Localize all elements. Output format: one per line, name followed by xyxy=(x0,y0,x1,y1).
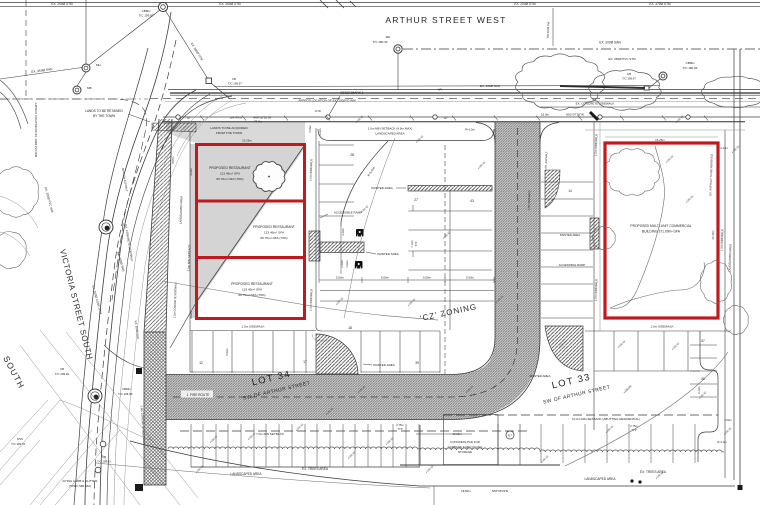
svg-text:10.0m MIN SETBACK (ABUTTING RE: 10.0m MIN SETBACK (ABUTTING RESIDENTIAL) xyxy=(572,417,640,421)
svg-text:17: 17 xyxy=(303,360,307,364)
svg-text:1.5m SIDEWALK: 1.5m SIDEWALK xyxy=(651,325,674,329)
svg-text:PROPOSED RESTAURANT: PROPOSED RESTAURANT xyxy=(253,225,295,229)
svg-text:1.70m: 1.70m xyxy=(410,239,414,247)
svg-text:T/C 199.92: T/C 199.92 xyxy=(55,372,70,376)
svg-text:WV: WV xyxy=(438,88,443,92)
svg-text:15.25m: 15.25m xyxy=(242,139,252,143)
svg-text:15.0m: 15.0m xyxy=(541,113,550,117)
svg-text:LANDS TO BE RETAINED: LANDS TO BE RETAINED xyxy=(85,109,123,113)
svg-text:EX. CONCRETE SIDEWALK: EX. CONCRETE SIDEWALK xyxy=(576,102,615,106)
svg-text:1.5m SIDEWALK: 1.5m SIDEWALK xyxy=(594,279,599,301)
svg-text:5.50m: 5.50m xyxy=(466,276,475,280)
svg-text:1.50m: 1.50m xyxy=(345,259,349,267)
svg-text:APPROX LOCATION OF EX. 200Ø PV: APPROX LOCATION OF EX. 200Ø PVC WM xyxy=(34,103,38,158)
svg-text:LANDS TO BE ACQUIRED: LANDS TO BE ACQUIRED xyxy=(210,126,248,130)
svg-text:PROPOSED RESTAURANT: PROPOSED RESTAURANT xyxy=(209,166,251,170)
svg-text:R=1.0m: R=1.0m xyxy=(717,440,726,444)
svg-text:2.55m: 2.55m xyxy=(308,124,312,132)
svg-text:HL50m: HL50m xyxy=(461,489,471,493)
svg-text:12: 12 xyxy=(199,361,203,365)
svg-text:86.76m² NFA (70%): 86.76m² NFA (70%) xyxy=(216,177,243,181)
svg-text:1.5m SIDEWALK: 1.5m SIDEWALK xyxy=(594,134,599,156)
svg-text:6.00m: 6.00m xyxy=(381,276,390,280)
svg-text:BUILDING 371.09m² GFA: BUILDING 371.09m² GFA xyxy=(642,230,681,234)
svg-text:T/C 199.81: T/C 199.81 xyxy=(97,460,111,464)
svg-text:1 FIRE ROUTE: 1 FIRE ROUTE xyxy=(187,393,210,397)
svg-text:86.76m² NFA (70%): 86.76m² NFA (70%) xyxy=(238,293,265,297)
svg-text:(24.47m): (24.47m) xyxy=(230,116,242,120)
svg-text:TYP: TYP xyxy=(414,241,418,247)
svg-text:3.42m: 3.42m xyxy=(341,227,345,235)
svg-text:14: 14 xyxy=(568,189,572,193)
svg-text:2.75m: 2.75m xyxy=(396,423,404,427)
svg-text:43: 43 xyxy=(470,199,474,203)
svg-text:MH: MH xyxy=(96,63,101,67)
svg-text:1.5m SIDEWALK: 1.5m SIDEWALK xyxy=(242,325,265,329)
svg-text:LP: LP xyxy=(187,116,191,120)
svg-text:39: 39 xyxy=(415,361,419,365)
svg-text:CB: CB xyxy=(627,72,631,76)
svg-text:7.0m MIN SETBACK: 7.0m MIN SETBACK xyxy=(256,432,284,436)
svg-text:5.50m: 5.50m xyxy=(225,347,229,355)
svg-text:LANDSCAPED AREA: LANDSCAPED AREA xyxy=(375,132,404,136)
svg-text:CBMH: CBMH xyxy=(142,9,151,13)
svg-text:RD 300Ø SW: RD 300Ø SW xyxy=(546,21,551,38)
svg-text:123.45m² GFA: 123.45m² GFA xyxy=(264,231,285,235)
svg-text:EX. 200Ø STM: EX. 200Ø STM xyxy=(51,2,73,6)
svg-text:PAINTED AREA: PAINTED AREA xyxy=(560,233,580,237)
svg-text:57: 57 xyxy=(701,339,705,343)
svg-text:R=1.5m: R=1.5m xyxy=(465,128,476,132)
svg-text:1.5m SIDEWALK: 1.5m SIDEWALK xyxy=(527,189,532,210)
svg-text:PAINTED AREA: PAINTED AREA xyxy=(373,363,395,367)
svg-text:1.40m: 1.40m xyxy=(340,259,344,267)
svg-text:LANDSCAPED AREA: LANDSCAPED AREA xyxy=(585,477,617,481)
svg-text:PAINTED AREA: PAINTED AREA xyxy=(377,252,399,256)
svg-text:EX. 200Ø SAN: EX. 200Ø SAN xyxy=(480,84,500,88)
svg-text:PROPOSED RESTAURANT: PROPOSED RESTAURANT xyxy=(231,282,273,286)
svg-text:CB: CB xyxy=(232,77,236,81)
svg-text:18: 18 xyxy=(348,326,352,330)
svg-text:77.7m: 77.7m xyxy=(254,120,263,124)
svg-text:TYP: TYP xyxy=(397,427,402,431)
svg-text:28: 28 xyxy=(350,153,354,157)
svg-text:MH: MH xyxy=(386,35,391,39)
svg-text:GARBAGE & RECYCLING: GARBAGE & RECYCLING xyxy=(448,445,483,449)
svg-text:6.40m: 6.40m xyxy=(697,385,701,393)
svg-text:N52°05’02”E: N52°05’02”E xyxy=(492,489,508,493)
svg-text:EX. TREES AREA: EX. TREES AREA xyxy=(302,467,329,471)
svg-text:CBMH: CBMH xyxy=(686,61,695,65)
svg-text:1.0m MIN SETBACK (4.0m MAX): 1.0m MIN SETBACK (4.0m MAX) xyxy=(368,127,413,131)
svg-text:EX. ASPHALT: EX. ASPHALT xyxy=(544,151,549,168)
svg-text:3.14m: 3.14m xyxy=(720,146,728,150)
svg-text:123.45m² GFA: 123.45m² GFA xyxy=(220,172,241,176)
svg-text:ACCESSIBLE RAMP: ACCESSIBLE RAMP xyxy=(334,211,362,215)
svg-text:HYD: HYD xyxy=(315,109,321,113)
svg-text:3.00m: 3.00m xyxy=(318,127,322,135)
svg-text:24.39m: 24.39m xyxy=(711,230,715,240)
svg-text:EX. 250Ø PVC STM: EX. 250Ø PVC STM xyxy=(608,57,636,61)
svg-text:10.29m: 10.29m xyxy=(452,432,462,436)
svg-text:CB: CB xyxy=(60,367,64,371)
svg-text:STORAGE: STORAGE xyxy=(458,450,472,454)
svg-text:EX. 375Ø STM: EX. 375Ø STM xyxy=(649,2,671,6)
svg-text:E7: E7 xyxy=(508,434,512,438)
svg-text:3.00m: 3.00m xyxy=(189,167,193,175)
svg-text:MB: MB xyxy=(87,86,92,90)
svg-text:EX. 200Ø SAN: EX. 200Ø SAN xyxy=(599,41,621,45)
svg-text:PAINTED AREA: PAINTED AREA xyxy=(530,374,551,378)
svg-text:PAINTED AREA: PAINTED AREA xyxy=(371,186,393,190)
svg-text:1.5m SIDEWALK: 1.5m SIDEWALK xyxy=(309,289,314,311)
svg-text:27: 27 xyxy=(414,198,418,202)
svg-text:T/C 199.97: T/C 199.97 xyxy=(622,77,636,81)
svg-text:15.25m: 15.25m xyxy=(655,138,665,142)
svg-text:123.45m² GFA: 123.45m² GFA xyxy=(242,288,263,292)
svg-text:BENCHMARK 1: BENCHMARK 1 xyxy=(340,91,363,95)
svg-text:1.5m SIDEWALK: 1.5m SIDEWALK xyxy=(720,229,725,251)
svg-text:DYING CURB & GUTTER: DYING CURB & GUTTER xyxy=(63,479,99,483)
svg-text:5.00m: 5.00m xyxy=(423,276,432,280)
svg-text:T/C 180.02: T/C 180.02 xyxy=(683,66,698,70)
svg-text:CONCRETE PAD FOR: CONCRETE PAD FOR xyxy=(450,440,480,444)
svg-text:1.5m SIDEWALK: 1.5m SIDEWALK xyxy=(309,159,314,181)
svg-text:BY THE TOWN: BY THE TOWN xyxy=(93,114,116,118)
svg-text:APPROX LOCATION OF EX. 150Ø ID: APPROX LOCATION OF EX. 150Ø ID WM xyxy=(298,98,356,102)
svg-text:3.00m: 3.00m xyxy=(724,418,732,422)
svg-text:EX. 200Ø STM: EX. 200Ø STM xyxy=(514,2,536,6)
svg-text:T/C 199.99: T/C 199.99 xyxy=(118,392,133,396)
svg-text:PROPOSED MULTI-UNIT COMMERCIAL: PROPOSED MULTI-UNIT COMMERCIAL xyxy=(630,224,691,228)
svg-text:N52°07’30”W: N52°07’30”W xyxy=(566,113,584,117)
svg-text:T/C 199.67: T/C 199.67 xyxy=(228,82,242,86)
svg-text:EXTG: EXTG xyxy=(171,156,175,163)
svg-text:5.50m: 5.50m xyxy=(336,276,345,280)
svg-text:3.00m: 3.00m xyxy=(189,310,193,318)
svg-text:EX. 300Ø STM: EX. 300Ø STM xyxy=(219,2,241,6)
svg-text:DSS: DSS xyxy=(17,437,23,441)
svg-text:CBMH: CBMH xyxy=(122,387,131,391)
svg-text:LP: LP xyxy=(444,116,448,120)
svg-text:ARTHUR STREET WEST: ARTHUR STREET WEST xyxy=(385,15,506,25)
svg-text:ACCESSIBLE RAMP: ACCESSIBLE RAMP xyxy=(559,263,586,267)
svg-text:86.76m² NFA (70%): 86.76m² NFA (70%) xyxy=(260,236,287,240)
svg-text:FROM THE TOWN: FROM THE TOWN xyxy=(216,131,242,135)
svg-text:T/C 180.30: T/C 180.30 xyxy=(373,40,388,44)
